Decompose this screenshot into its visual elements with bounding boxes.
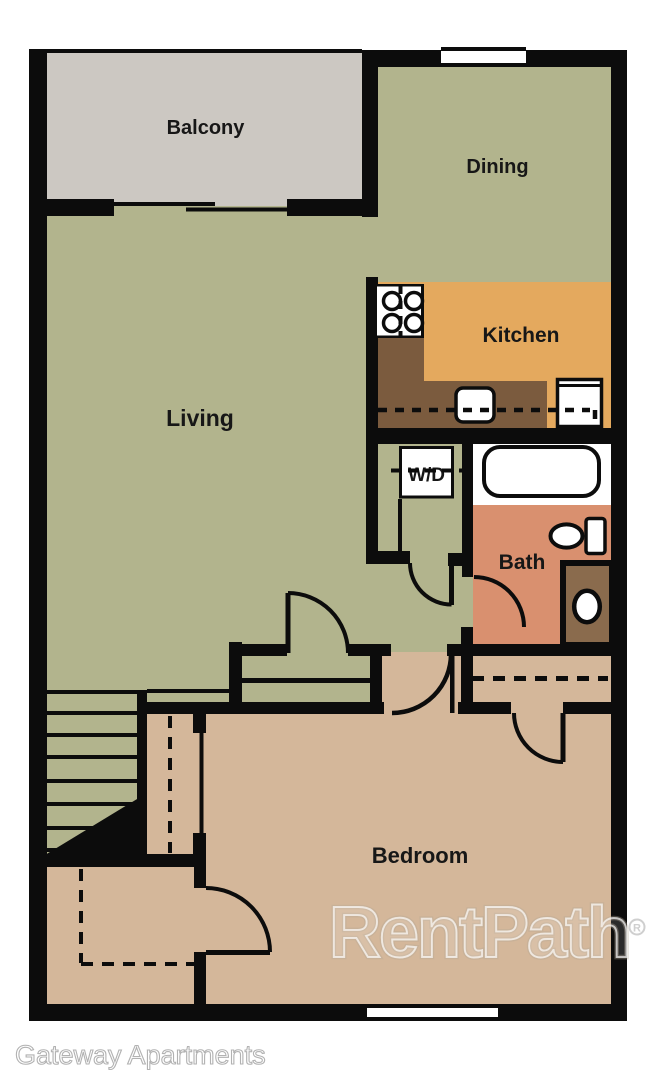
svg-text:Bedroom: Bedroom: [372, 843, 469, 868]
svg-text:R: R: [633, 923, 641, 935]
svg-text:Gateway Apartments: Gateway Apartments: [15, 1040, 266, 1070]
svg-text:Living: Living: [166, 405, 234, 431]
svg-text:Balcony: Balcony: [167, 117, 246, 139]
svg-text:W/D: W/D: [408, 465, 445, 486]
svg-text:RentPath: RentPath: [329, 893, 629, 973]
svg-text:Bath: Bath: [499, 551, 546, 574]
svg-text:Dining: Dining: [466, 156, 528, 178]
svg-text:Kitchen: Kitchen: [482, 324, 559, 347]
